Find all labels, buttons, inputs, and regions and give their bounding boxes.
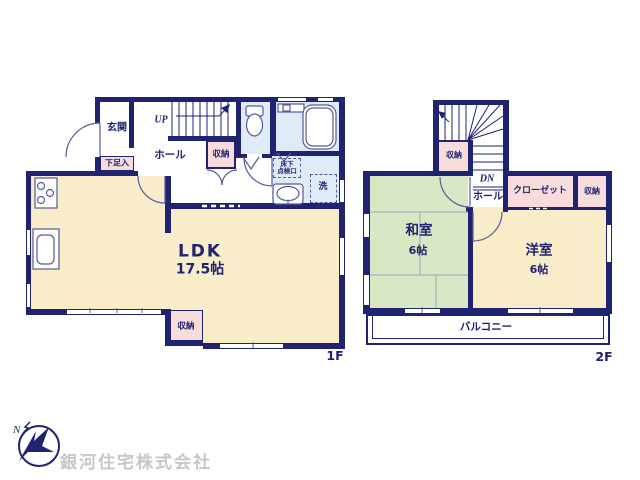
- wall: [503, 100, 509, 176]
- room-japanese: [370, 176, 468, 308]
- wall: [363, 308, 612, 314]
- wall: [26, 309, 67, 315]
- wall: [433, 100, 509, 105]
- wall: [165, 203, 339, 209]
- wall: [466, 207, 473, 212]
- window: [508, 308, 573, 314]
- label-floor-1f: 1F: [326, 349, 343, 363]
- window: [26, 284, 31, 307]
- wall: [272, 151, 339, 156]
- entrance-door-arc: [66, 123, 100, 157]
- label-stairs-down: DN: [480, 174, 494, 185]
- label-underfloor-hatch: 床下点検口: [277, 161, 297, 175]
- window: [363, 275, 370, 305]
- label-stairs-up: UP: [154, 115, 167, 126]
- label-hall-storage: 収納: [212, 150, 229, 159]
- label-japanese-room: 和室: [406, 224, 433, 239]
- window: [339, 180, 345, 202]
- window: [278, 97, 306, 102]
- room-bath: [276, 102, 339, 151]
- dn-arrow-head: [438, 111, 446, 119]
- compass-n-label: N: [12, 424, 21, 436]
- wall: [26, 171, 138, 176]
- label-stair-storage: 収納: [446, 152, 462, 161]
- wall: [339, 210, 345, 349]
- room-ldk: [165, 233, 171, 309]
- label-entrance: 玄関: [107, 123, 127, 134]
- window: [363, 214, 370, 237]
- compass-north-icon: N: [12, 422, 59, 466]
- label-laundry: 洗: [318, 183, 327, 193]
- label-hall-1f: ホール: [154, 150, 186, 162]
- label-closet: クローゼット: [513, 187, 567, 197]
- label-western-room-size: 6帖: [530, 264, 549, 276]
- wall: [468, 140, 473, 176]
- label-ldk: LDK: [178, 243, 222, 262]
- window: [26, 230, 31, 255]
- label-floor-2f: 2F: [595, 350, 612, 364]
- window: [405, 308, 440, 314]
- wall: [262, 154, 272, 158]
- window: [606, 225, 612, 262]
- label-balcony: バルコニー: [460, 322, 512, 334]
- window: [339, 238, 345, 275]
- wall: [236, 102, 241, 158]
- window: [67, 309, 161, 315]
- wall: [573, 176, 578, 207]
- wall: [270, 102, 276, 156]
- wall: [503, 171, 612, 176]
- label-western-room: 洋室: [526, 244, 553, 259]
- room-toilet: [241, 102, 270, 154]
- window: [220, 343, 283, 349]
- washroom-door-arc: [244, 158, 272, 186]
- label-japanese-room-size: 6帖: [409, 245, 428, 257]
- room-ldk: [31, 176, 165, 309]
- wall: [95, 97, 100, 123]
- wall: [433, 100, 439, 176]
- company-watermark: 銀河住宅株式会社: [60, 448, 212, 473]
- wall: [468, 207, 473, 308]
- label-ldk-size: 17.5帖: [176, 262, 225, 277]
- wall: [165, 340, 203, 346]
- label-shoe-cabinet: 下足入: [105, 160, 129, 169]
- toilet-door: [243, 157, 259, 169]
- label-hall-2f: ホール: [473, 192, 503, 203]
- window: [318, 97, 333, 102]
- label-ldk-storage: 収納: [177, 322, 194, 331]
- label-storage-2f: 収納: [584, 188, 600, 197]
- wall: [129, 102, 134, 148]
- wall: [241, 154, 247, 158]
- compass-arrow: [19, 427, 54, 461]
- wall: [363, 171, 473, 176]
- floor-plan-page: N 玄関 下足入 UP ホール 収納 床下点検口 洗 LDK 17.5帖 収納 …: [0, 0, 640, 480]
- wall: [503, 207, 612, 210]
